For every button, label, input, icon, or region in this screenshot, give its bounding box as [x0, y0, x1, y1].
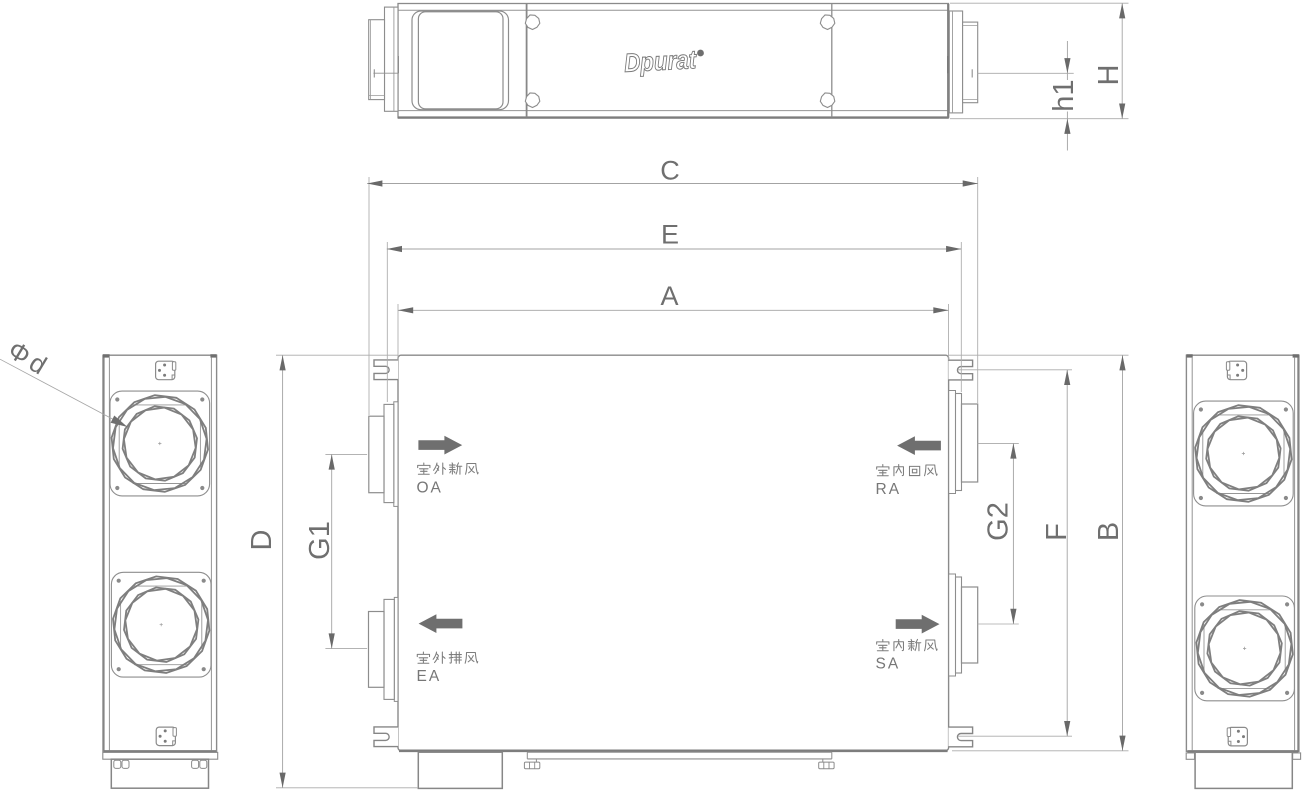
svg-text:SA: SA	[876, 656, 901, 673]
svg-text:F: F	[1041, 523, 1073, 541]
svg-text:OA: OA	[417, 480, 443, 497]
svg-text:D: D	[246, 530, 278, 551]
svg-text:RA: RA	[876, 481, 902, 498]
svg-text:G1: G1	[304, 521, 336, 560]
svg-text:Φd: Φd	[3, 334, 55, 382]
svg-text:G2: G2	[983, 502, 1015, 541]
svg-text:E: E	[661, 220, 679, 250]
svg-text:C: C	[660, 156, 680, 186]
svg-text:h1: h1	[1048, 79, 1080, 111]
svg-text:EA: EA	[417, 668, 442, 685]
svg-text:H: H	[1093, 65, 1125, 86]
svg-text:B: B	[1093, 522, 1125, 541]
svg-text:A: A	[660, 281, 678, 311]
svg-text:Dpurat: Dpurat	[623, 44, 698, 78]
